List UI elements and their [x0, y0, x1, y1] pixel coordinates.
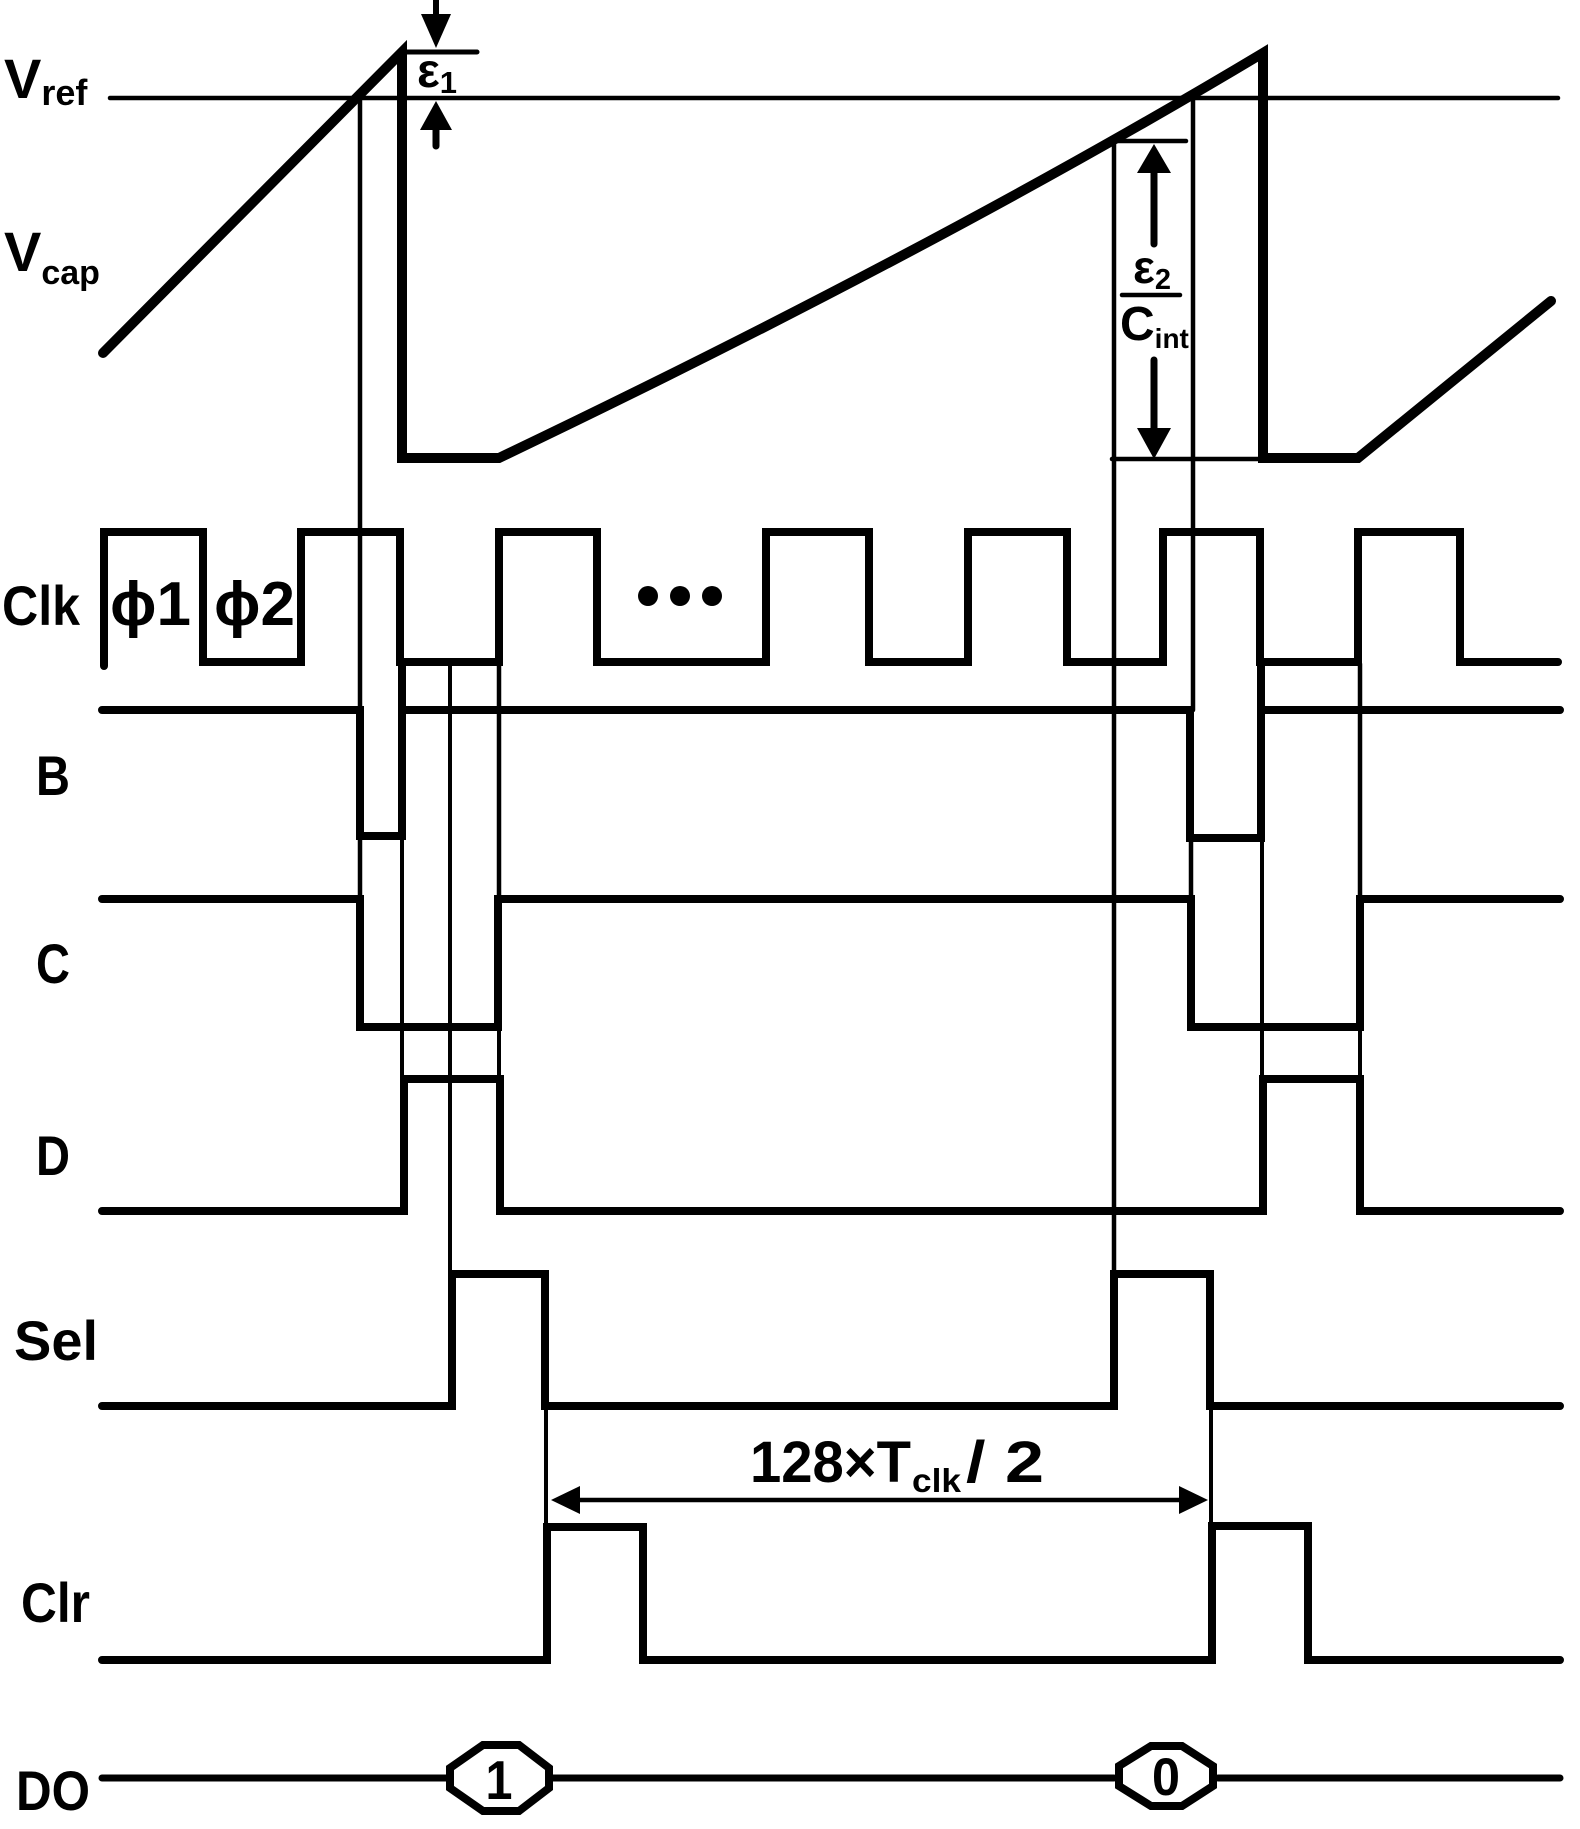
svg-text:DO: DO	[16, 1759, 90, 1822]
svg-text:Vref: Vref	[4, 47, 88, 113]
svg-text:Vcap: Vcap	[4, 220, 100, 292]
svg-text:Clr: Clr	[21, 1571, 90, 1634]
svg-text:0: 0	[1152, 1748, 1180, 1807]
svg-text:128×T: 128×T	[750, 1430, 911, 1495]
svg-text:C: C	[36, 932, 70, 995]
svg-text:Sel: Sel	[14, 1309, 98, 1372]
svg-text:Clk: Clk	[2, 574, 81, 637]
svg-text:1: 1	[486, 1749, 513, 1811]
svg-text:B: B	[36, 744, 70, 807]
svg-text:/ 2: / 2	[966, 1430, 1044, 1495]
svg-text:Cint: Cint	[1120, 298, 1189, 354]
svg-text:ϕ1: ϕ1	[110, 570, 191, 639]
svg-text:D: D	[36, 1124, 70, 1187]
svg-text:clk: clk	[912, 1462, 962, 1499]
svg-text:ϕ2: ϕ2	[214, 570, 295, 639]
svg-text:ε2: ε2	[1133, 241, 1171, 296]
